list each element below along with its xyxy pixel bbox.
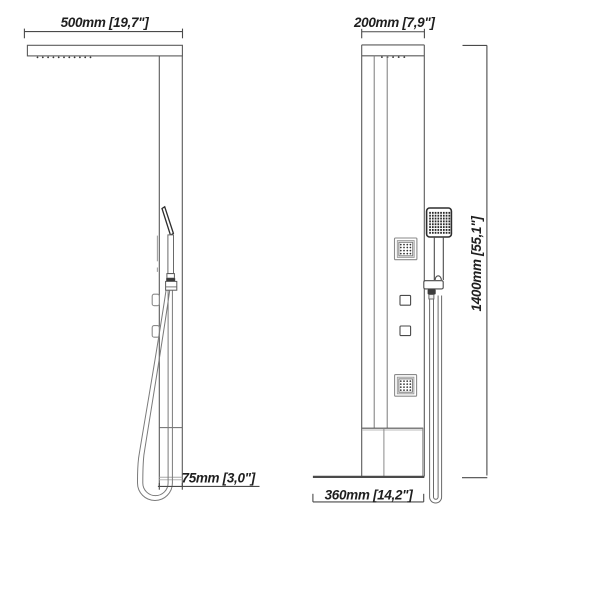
svg-text:500mm [19,7"]: 500mm [19,7"] xyxy=(61,15,150,30)
svg-text:1400mm [55,1"]: 1400mm [55,1"] xyxy=(469,216,484,312)
svg-text:75mm [3,0"]: 75mm [3,0"] xyxy=(182,470,256,485)
svg-text:200mm [7,9"]: 200mm [7,9"] xyxy=(353,15,435,30)
svg-text:360mm [14,2"]: 360mm [14,2"] xyxy=(325,488,414,503)
